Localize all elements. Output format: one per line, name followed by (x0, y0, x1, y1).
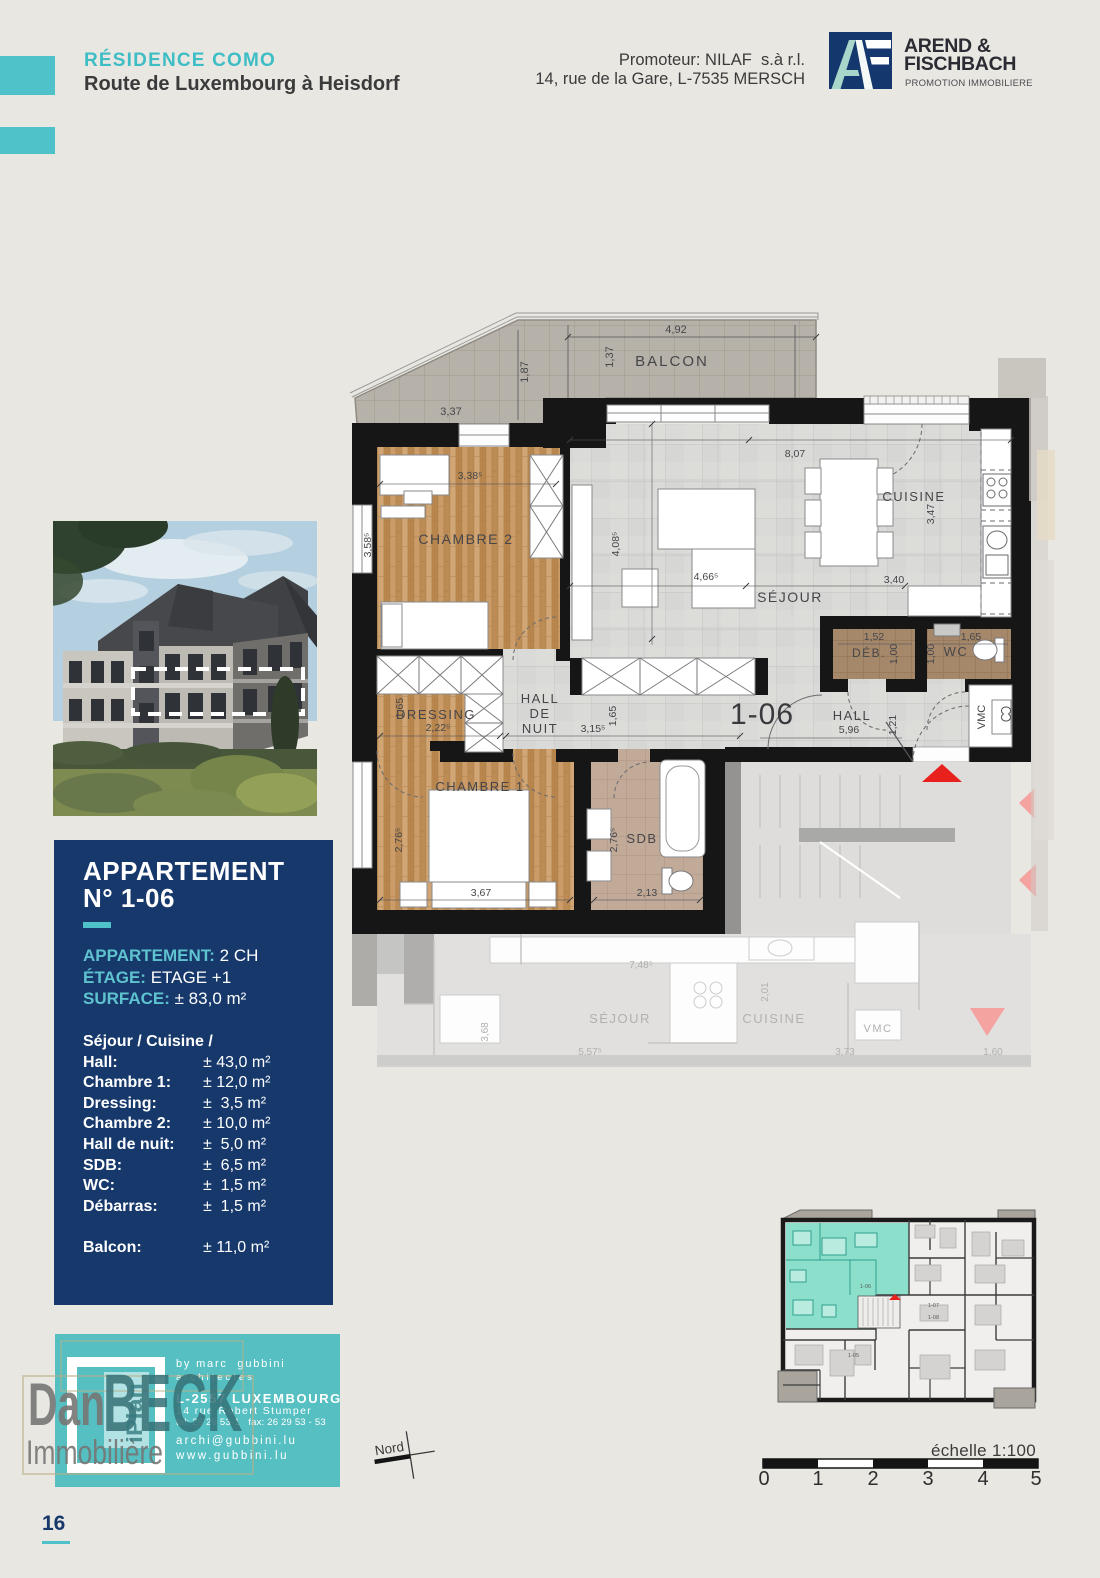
svg-text:SÉJOUR: SÉJOUR (757, 589, 823, 605)
svg-text:4,92: 4,92 (665, 324, 686, 336)
svg-text:2,76⁵: 2,76⁵ (393, 828, 405, 853)
svg-text:VMC: VMC (976, 705, 988, 730)
svg-text:DE: DE (529, 706, 550, 721)
svg-text:BALCON: BALCON (635, 353, 709, 370)
svg-text:1,00: 1,00 (925, 644, 937, 665)
svg-text:1,21: 1,21 (887, 715, 899, 736)
svg-text:2,13: 2,13 (637, 887, 658, 899)
svg-text:3,58⁵: 3,58⁵ (362, 533, 374, 558)
svg-text:1-06: 1-06 (730, 698, 794, 731)
svg-text:1,37: 1,37 (604, 346, 616, 367)
svg-text:1,52: 1,52 (864, 631, 885, 643)
svg-text:1,65: 1,65 (394, 698, 406, 719)
svg-text:1-05: 1-05 (848, 1353, 859, 1359)
svg-text:1,65: 1,65 (607, 706, 619, 727)
svg-text:3,67: 3,67 (471, 887, 492, 899)
svg-text:3,38⁵: 3,38⁵ (458, 470, 483, 482)
svg-text:8,07: 8,07 (785, 448, 806, 460)
svg-text:3,37: 3,37 (440, 406, 461, 418)
svg-text:3,47: 3,47 (925, 504, 937, 525)
svg-text:VMC: VMC (864, 1023, 893, 1035)
svg-text:4,66⁵: 4,66⁵ (694, 571, 719, 583)
svg-text:DRESSING: DRESSING (396, 707, 476, 722)
svg-text:2: 2 (867, 1468, 878, 1490)
svg-text:0: 0 (758, 1468, 769, 1490)
svg-text:2,01: 2,01 (760, 982, 771, 1002)
svg-text:CHAMBRE 2: CHAMBRE 2 (418, 531, 513, 547)
svg-text:3,40: 3,40 (884, 574, 905, 586)
svg-text:CUISINE: CUISINE (882, 489, 945, 504)
svg-text:SÉJOUR: SÉJOUR (589, 1011, 651, 1026)
svg-text:5,57⁵: 5,57⁵ (578, 1047, 602, 1058)
svg-text:1-08: 1-08 (928, 1315, 939, 1321)
svg-text:5,96: 5,96 (839, 724, 860, 736)
svg-text:CHAMBRE 1: CHAMBRE 1 (435, 779, 524, 794)
svg-text:1-06: 1-06 (860, 1284, 871, 1290)
svg-text:2,22⁵: 2,22⁵ (426, 722, 451, 734)
svg-text:3: 3 (922, 1468, 933, 1490)
svg-text:SDB: SDB (626, 831, 657, 846)
svg-text:3,68: 3,68 (480, 1022, 491, 1042)
svg-text:3,15⁵: 3,15⁵ (581, 723, 606, 735)
svg-text:1-07: 1-07 (928, 1303, 939, 1309)
svg-text:4,08⁵: 4,08⁵ (610, 532, 622, 557)
svg-text:5: 5 (1030, 1468, 1041, 1490)
svg-text:1,65: 1,65 (961, 631, 982, 643)
svg-text:WC: WC (944, 644, 969, 659)
svg-text:HALL: HALL (521, 691, 560, 706)
svg-text:CUISINE: CUISINE (742, 1011, 805, 1026)
svg-text:DÉB.: DÉB. (852, 645, 886, 660)
svg-text:1: 1 (812, 1468, 823, 1490)
svg-text:4: 4 (977, 1468, 988, 1490)
svg-text:Nord: Nord (374, 1439, 405, 1458)
svg-text:HALL: HALL (833, 708, 872, 723)
svg-text:3,73: 3,73 (835, 1047, 855, 1058)
svg-text:1,87: 1,87 (519, 361, 531, 382)
svg-text:1,60: 1,60 (983, 1047, 1003, 1058)
svg-text:2,76⁵: 2,76⁵ (608, 828, 620, 853)
svg-text:1,00: 1,00 (888, 644, 900, 665)
svg-text:7,48⁵: 7,48⁵ (629, 960, 653, 971)
svg-text:NUIT: NUIT (522, 721, 558, 736)
